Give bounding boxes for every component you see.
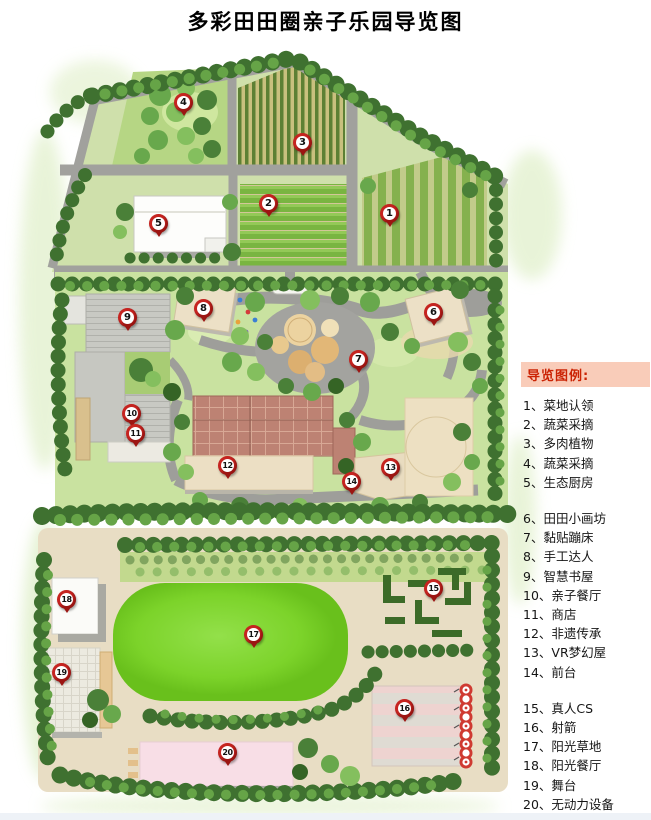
marker-number: 2 — [262, 197, 275, 210]
marker-number: 3 — [296, 136, 309, 149]
legend-item-9: 9、智慧书屋 — [523, 567, 650, 586]
map-marker-4: 4 — [174, 93, 193, 112]
marker-number: 8 — [197, 302, 210, 315]
marker-number: 10 — [125, 407, 138, 420]
legend-item-12: 12、非遗传承 — [523, 624, 650, 643]
map-marker-19: 19 — [52, 663, 71, 682]
playground-area — [255, 302, 375, 394]
legend-item-7: 7、黏贴蹦床 — [523, 528, 650, 547]
legend-item-19: 19、舞台 — [523, 776, 650, 795]
crop-field-2 — [240, 184, 354, 268]
map-marker-11: 11 — [126, 424, 145, 443]
park-guide-map-page: 多彩田田圈亲子乐园导览图 — [0, 0, 651, 820]
legend-item-16: 16、射箭 — [523, 718, 650, 737]
lawn-section — [38, 528, 508, 795]
legend-item-5: 5、生态厨房 — [523, 473, 650, 492]
farm-section — [45, 58, 508, 272]
map-marker-14: 14 — [342, 472, 361, 491]
legend-item-6: 6、田田小画坊 — [523, 509, 650, 528]
legend-item-10: 10、亲子餐厅 — [523, 586, 650, 605]
marker-number: 17 — [247, 628, 260, 641]
marker-number: 20 — [221, 746, 234, 759]
legend-item-18: 18、阳光餐厅 — [523, 756, 650, 775]
sunshine-lawn — [113, 583, 348, 701]
building-5-eco-kitchen — [134, 196, 226, 258]
legend-group-farm: 1、菜地认领2、蔬菜采摘3、多肉植物4、蔬菜采摘5、生态厨房 — [523, 396, 650, 492]
marker-number: 12 — [221, 459, 234, 472]
marker-number: 16 — [398, 702, 411, 715]
map-marker-20: 20 — [218, 743, 237, 762]
legend-item-2: 2、蔬菜采摘 — [523, 415, 650, 434]
legend-item-8: 8、手工达人 — [523, 547, 650, 566]
legend-group-activities: 6、田田小画坊7、黏贴蹦床8、手工达人9、智慧书屋10、亲子餐厅11、商店12、… — [523, 509, 650, 682]
map-marker-15: 15 — [424, 579, 443, 598]
map-marker-6: 6 — [424, 303, 443, 322]
map-marker-18: 18 — [57, 590, 76, 609]
map-marker-1: 1 — [380, 204, 399, 223]
map-marker-16: 16 — [395, 699, 414, 718]
legend-item-17: 17、阳光草地 — [523, 737, 650, 756]
legend-item-11: 11、商店 — [523, 605, 650, 624]
marker-number: 7 — [352, 353, 365, 366]
marker-number: 19 — [55, 666, 68, 679]
legend-group-lawn: 15、真人CS16、射箭17、阳光草地18、阳光餐厅19、舞台20、无动力设备 — [523, 699, 650, 814]
marker-number: 15 — [427, 582, 440, 595]
map-marker-12: 12 — [218, 456, 237, 475]
marker-number: 14 — [345, 475, 358, 488]
map-marker-17: 17 — [244, 625, 263, 644]
map-marker-9: 9 — [118, 308, 137, 327]
marker-number: 9 — [121, 311, 134, 324]
archery-targets — [460, 684, 473, 769]
marker-number: 13 — [384, 461, 397, 474]
legend-item-1: 1、菜地认领 — [523, 396, 650, 415]
legend-header: 导览图例: — [521, 362, 650, 387]
round-plaza — [405, 398, 473, 496]
map-marker-3: 3 — [293, 133, 312, 152]
map-marker-13: 13 — [381, 458, 400, 477]
marker-number: 11 — [129, 427, 142, 440]
marker-number: 1 — [383, 207, 396, 220]
map-marker-7: 7 — [349, 350, 368, 369]
map-marker-2: 2 — [259, 194, 278, 213]
map-marker-8: 8 — [194, 299, 213, 318]
legend-item-4: 4、蔬菜采摘 — [523, 454, 650, 473]
tree-band-separator — [42, 511, 508, 520]
marker-number: 18 — [60, 593, 73, 606]
legend-item-3: 3、多肉植物 — [523, 434, 650, 453]
marker-number: 5 — [152, 217, 165, 230]
legend-panel: 导览图例: 1、菜地认领2、蔬菜采摘3、多肉植物4、蔬菜采摘5、生态厨房 6、田… — [521, 362, 650, 814]
legend-item-20: 20、无动力设备 — [523, 795, 650, 814]
legend-item-13: 13、VR梦幻屋 — [523, 643, 650, 662]
building-9-complex — [64, 294, 170, 462]
legend-item-15: 15、真人CS — [523, 699, 650, 718]
marker-number: 6 — [427, 306, 440, 319]
archery-range — [372, 684, 473, 769]
marker-number: 4 — [177, 96, 190, 109]
map-marker-5: 5 — [149, 214, 168, 233]
map-marker-10: 10 — [122, 404, 141, 423]
legend-item-14: 14、前台 — [523, 663, 650, 682]
